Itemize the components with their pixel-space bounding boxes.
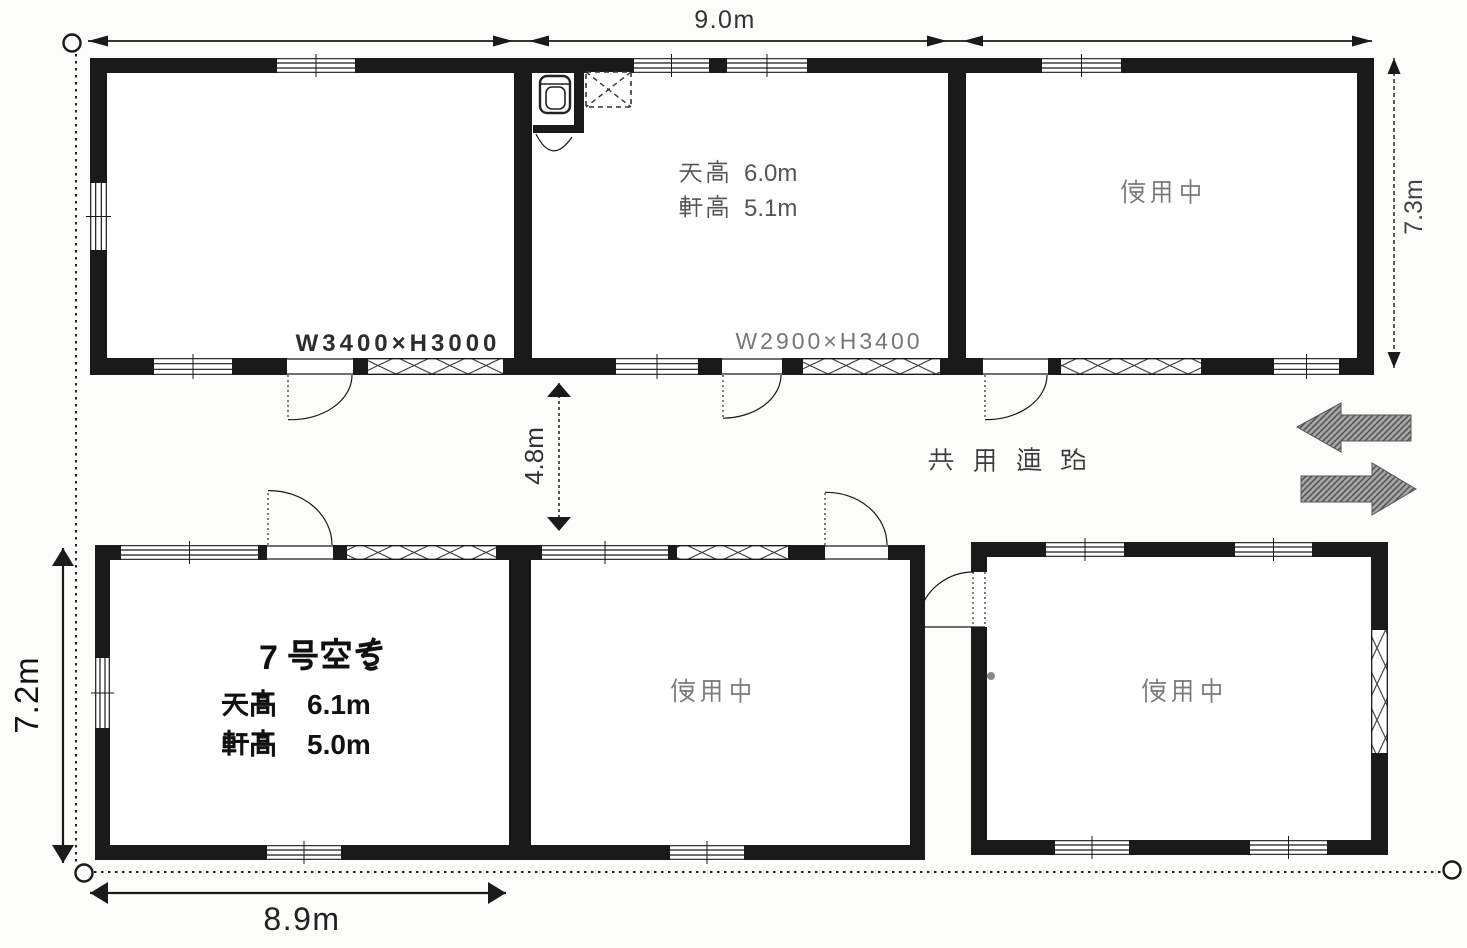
svg-text:5.0m: 5.0m — [307, 729, 371, 760]
svg-text:7.2m: 7.2m — [8, 656, 45, 733]
svg-text:8.9m: 8.9m — [263, 901, 340, 937]
svg-text:6.1m: 6.1m — [307, 689, 371, 720]
svg-text:W2900×H3400: W2900×H3400 — [735, 328, 922, 354]
svg-text:9.0m: 9.0m — [694, 6, 756, 34]
svg-text:6.0m: 6.0m — [744, 160, 797, 187]
svg-text:7.3m: 7.3m — [1400, 179, 1428, 235]
svg-text:W3400×H3000: W3400×H3000 — [296, 330, 501, 357]
svg-text:5.1m: 5.1m — [744, 195, 797, 222]
svg-text:4.8m: 4.8m — [519, 427, 549, 485]
svg-text:7: 7 — [259, 639, 278, 677]
